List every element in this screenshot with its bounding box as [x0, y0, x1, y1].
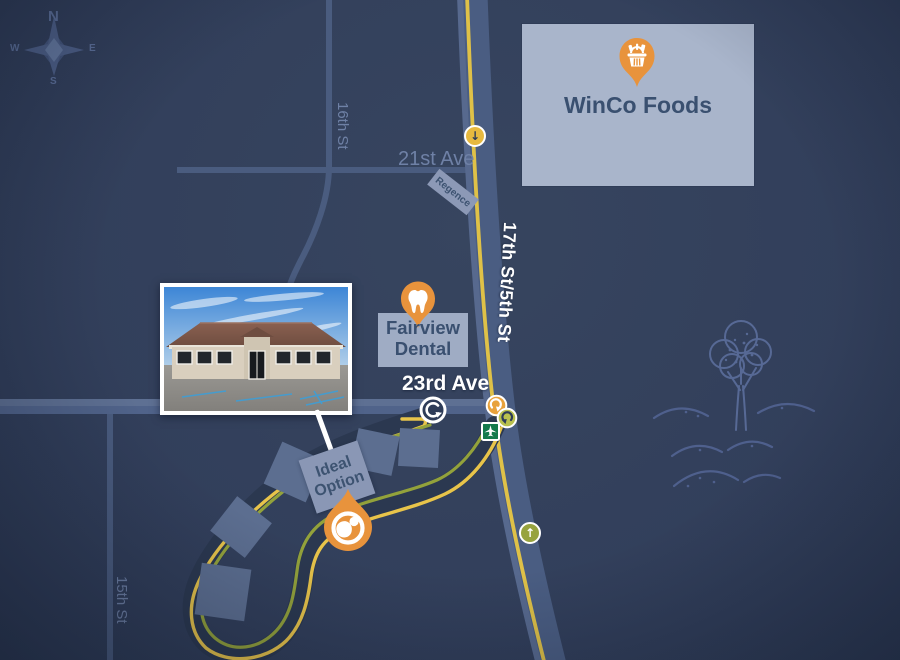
compass-e: E [89, 43, 96, 54]
down-arrow-dot: ↓ [464, 125, 486, 147]
clinic-photo-art [164, 287, 348, 411]
ideal-option-droplet-marker[interactable] [321, 488, 375, 552]
clinic-photo-inset [160, 283, 352, 415]
street-label-16th-st: 16th St [334, 102, 351, 150]
grocery-basket-pin[interactable] [617, 36, 657, 88]
up-arrow-dot: ↑ [519, 522, 541, 544]
logo-drop [336, 521, 352, 537]
fairview-line1: Fairview [378, 317, 468, 338]
street-label-15th-st: 15th St [113, 576, 130, 624]
street-label-21st-ave: 21st Ave [398, 148, 474, 171]
road-16th-st [288, 0, 329, 291]
compass-rose: N W E S [6, 6, 102, 92]
compass-s: S [50, 76, 57, 87]
winco-foods-label: WinCo Foods [522, 92, 754, 119]
street-label-23rd-ave: 23rd Ave [402, 372, 489, 396]
airplane-sign [481, 422, 500, 441]
map-canvas: N W E S WinCo Foods Regence Fairview Den… [0, 0, 900, 660]
fairview-dental-label: Fairview Dental [378, 317, 468, 359]
compass-w: W [10, 43, 19, 54]
dune-waves-sketch [654, 404, 814, 487]
roundabout-arrow-icon [419, 396, 447, 424]
logo-dot [349, 517, 358, 526]
compass-n: N [48, 8, 59, 25]
fairview-line2: Dental [378, 338, 468, 359]
building-block [398, 428, 440, 468]
tree-sketch [710, 321, 771, 430]
building-block [195, 563, 252, 621]
